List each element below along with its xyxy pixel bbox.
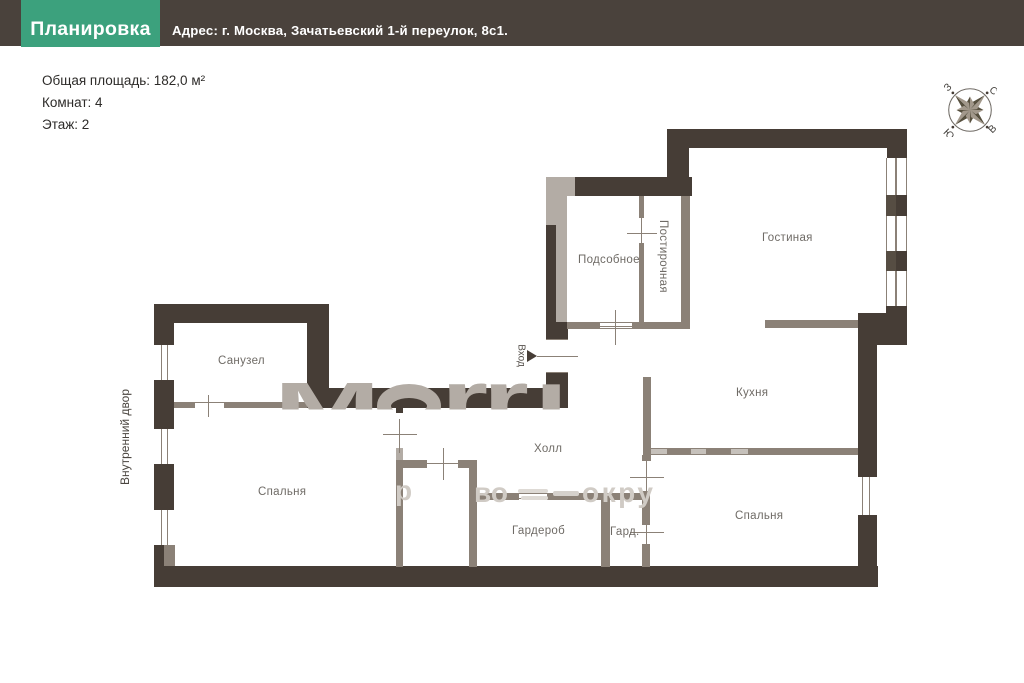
svg-text:r: r bbox=[483, 353, 529, 446]
svg-text:во: во bbox=[474, 477, 508, 508]
svg-text:M: M bbox=[274, 368, 381, 442]
svg-text:i: i bbox=[534, 353, 569, 446]
svg-text:р: р bbox=[395, 475, 412, 506]
svg-text:окру: окру bbox=[582, 477, 655, 508]
svg-text:r: r bbox=[441, 354, 488, 447]
